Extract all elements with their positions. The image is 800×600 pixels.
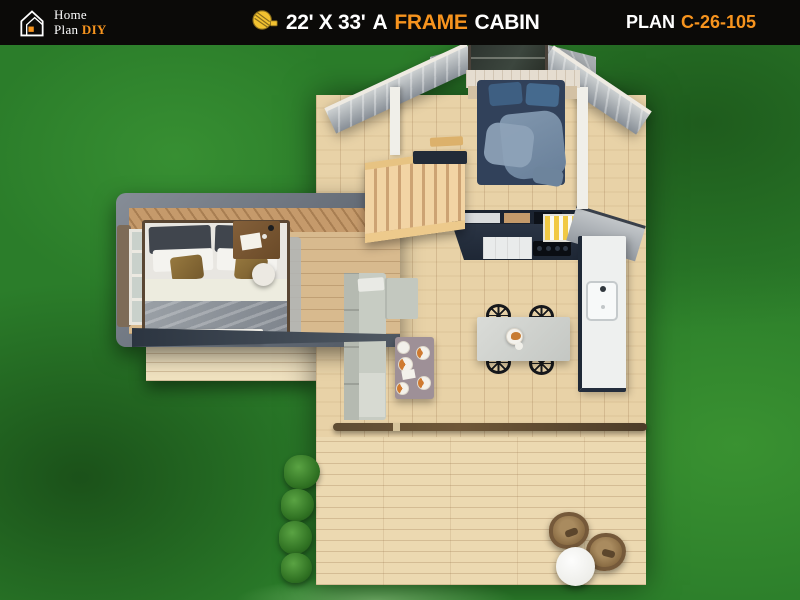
garden-bush xyxy=(281,489,314,521)
brand-line2-accent: DIY xyxy=(82,22,107,37)
sofa-seat-cushion xyxy=(359,373,385,417)
header-bar: Home Plan DIY 22' X 33' A FRAME CABIN PL… xyxy=(0,0,800,45)
loft-bench xyxy=(430,136,463,147)
coffee-table xyxy=(395,337,434,399)
brand-logo: Home Plan DIY xyxy=(0,7,107,39)
burner xyxy=(546,246,551,251)
burner xyxy=(537,246,542,251)
burner xyxy=(563,246,568,251)
loft-wall-left xyxy=(390,87,400,155)
counter-wood-section xyxy=(504,213,530,223)
house-logo-icon xyxy=(16,7,48,39)
drain xyxy=(601,305,605,309)
sink xyxy=(586,281,618,321)
sofa-pillow xyxy=(358,277,385,292)
desk-cup xyxy=(262,234,267,239)
page-title: 22' X 33' A FRAME CABIN xyxy=(249,0,540,45)
sectional-sofa xyxy=(344,273,386,420)
fridge-top xyxy=(483,237,532,259)
desk xyxy=(233,221,280,259)
skylight-mullion xyxy=(471,57,545,59)
ottoman xyxy=(252,263,275,286)
floor-plan-render xyxy=(0,45,800,600)
chair-slot xyxy=(564,527,579,538)
cooktop xyxy=(533,241,571,256)
chair-slot xyxy=(601,548,615,558)
plan-number: PLAN C-26-105 xyxy=(626,12,800,33)
burner xyxy=(555,246,560,251)
garden-bush xyxy=(279,521,312,554)
title-last-word: CABIN xyxy=(475,11,540,35)
pillow xyxy=(488,82,523,107)
title-article: A xyxy=(373,11,388,35)
plan-code: C-26-105 xyxy=(681,12,756,33)
plan-label: PLAN xyxy=(626,12,675,33)
tape-measure-icon xyxy=(249,5,279,41)
sofa-chaise xyxy=(385,278,418,319)
door-gap xyxy=(393,423,400,431)
faucet xyxy=(600,286,606,292)
cup xyxy=(515,342,523,350)
title-accent-word: FRAME xyxy=(394,11,467,35)
patio-table xyxy=(556,547,595,586)
stair-railing xyxy=(413,151,467,164)
ridge-skylight xyxy=(468,45,548,73)
brand-line1: Home xyxy=(54,7,87,22)
brand-name: Home Plan DIY xyxy=(54,8,107,36)
accent-pillow xyxy=(170,254,205,282)
screenshot-root: Home Plan DIY 22' X 33' A FRAME CABIN PL… xyxy=(0,0,800,600)
paper-sheet xyxy=(240,233,262,251)
garden-bush xyxy=(281,553,312,583)
napkin xyxy=(401,369,415,380)
double-bed-blue xyxy=(477,80,565,185)
loft-wall-right xyxy=(577,87,588,209)
brand-line2: Plan xyxy=(54,22,78,37)
dining-table xyxy=(477,317,570,361)
pizza-plate xyxy=(396,382,409,395)
kitchen-appliance xyxy=(462,213,500,223)
plate xyxy=(397,341,410,354)
side-deck-step xyxy=(146,347,318,381)
pillow xyxy=(525,83,559,107)
pizza-plate xyxy=(416,346,430,360)
desk-lamp xyxy=(268,225,274,231)
garden-bush xyxy=(284,455,320,489)
front-wall-beam xyxy=(333,423,647,431)
pizza-plate xyxy=(417,376,431,390)
duvet-fold xyxy=(483,121,536,169)
sofa-back-cushions xyxy=(344,273,359,420)
title-dimensions: 22' X 33' xyxy=(286,11,366,35)
croissant xyxy=(511,332,521,340)
